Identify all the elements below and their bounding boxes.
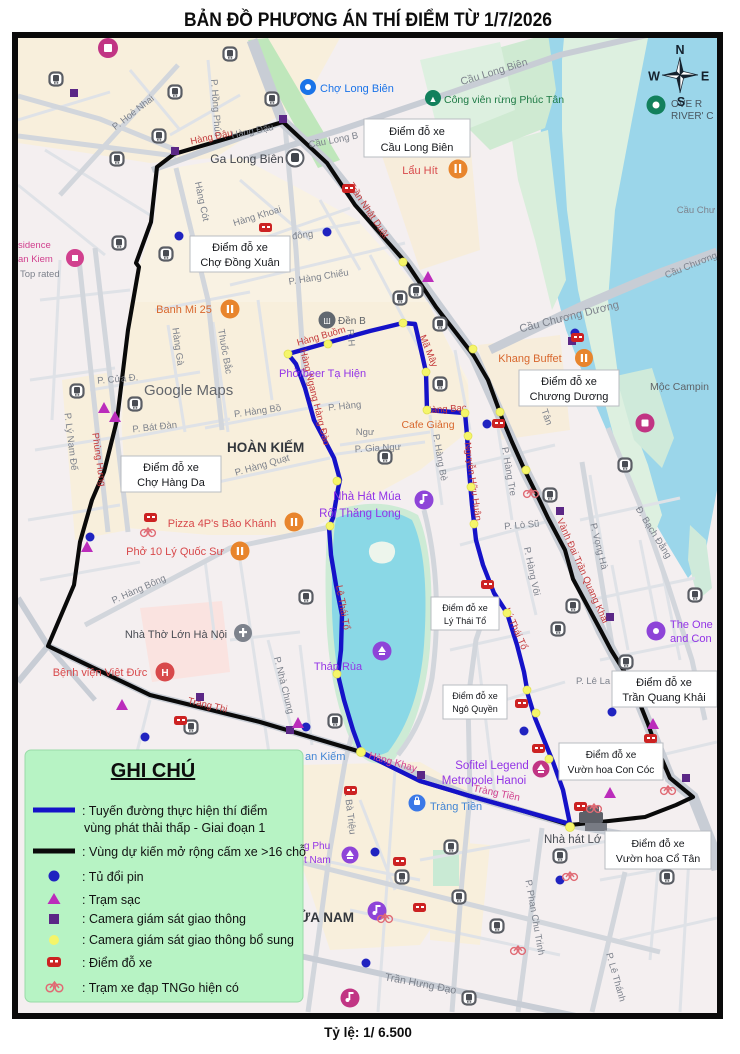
svg-text:Đền B: Đền B xyxy=(338,315,366,327)
svg-text:: Điểm đỗ xe: : Điểm đỗ xe xyxy=(82,955,152,970)
svg-text:S: S xyxy=(677,95,685,109)
svg-text:Bệnh viện Việt Đức: Bệnh viện Việt Đức xyxy=(53,667,148,679)
svg-text:Cafe Giảng: Cafe Giảng xyxy=(401,419,454,431)
svg-text:Ngư: Ngư xyxy=(356,427,375,438)
svg-text:P. H: P. H xyxy=(344,329,356,347)
svg-text:: Trạm xe đạp TNGo hiện có: : Trạm xe đạp TNGo hiện có xyxy=(82,981,239,995)
svg-text:W: W xyxy=(648,70,660,84)
svg-text:Tỷ lệ: 1/ 6.500: Tỷ lệ: 1/ 6.500 xyxy=(324,1025,412,1040)
svg-text:Pizza 4P's Bảo Khánh: Pizza 4P's Bảo Khánh xyxy=(168,518,277,530)
svg-text:▲: ▲ xyxy=(429,94,438,104)
svg-text:g Phu: g Phu xyxy=(304,841,330,852)
svg-text:Ш: Ш xyxy=(323,317,330,326)
svg-text:Nhà Thờ Lớn Hà Nội: Nhà Thờ Lớn Hà Nội xyxy=(125,629,227,641)
svg-text:t Nam: t Nam xyxy=(304,855,331,866)
svg-text:H: H xyxy=(161,668,168,679)
svg-text:and Con: and Con xyxy=(670,633,712,645)
svg-text:vùng phát thải thấp - Giai đoạ: vùng phát thải thấp - Giai đoạn 1 xyxy=(84,821,265,835)
svg-text:Google Maps: Google Maps xyxy=(144,382,233,399)
svg-text:Rối Thăng Long: Rối Thăng Long xyxy=(319,508,401,520)
svg-text:Nhà Hát Múa: Nhà Hát Múa xyxy=(333,491,401,503)
svg-text:Điểm đỗ xe: Điểm đỗ xe xyxy=(212,241,268,254)
svg-text:Ga Long Biên: Ga Long Biên xyxy=(210,152,283,166)
svg-text:OVE R: OVE R xyxy=(671,99,702,110)
svg-text:The One: The One xyxy=(670,619,713,631)
svg-text:Vườn hoa Cổ Tân: Vườn hoa Cổ Tân xyxy=(616,853,701,865)
svg-text:: Trạm sạc: : Trạm sạc xyxy=(82,893,140,907)
svg-text:Điểm đỗ xe: Điểm đỗ xe xyxy=(631,837,684,850)
svg-text:Điểm đỗ xe: Điểm đỗ xe xyxy=(636,676,692,689)
svg-text:Khang Buffet: Khang Buffet xyxy=(498,353,561,365)
svg-text:sidence: sidence xyxy=(18,240,51,251)
svg-text:E: E xyxy=(701,70,709,84)
svg-text:: Camera giám sát giao thông b: : Camera giám sát giao thông bổ sung xyxy=(82,933,294,947)
svg-text:Điểm đỗ xe: Điểm đỗ xe xyxy=(586,748,637,761)
svg-text:Trần Quang Khải: Trần Quang Khải xyxy=(622,692,705,704)
svg-text:Điểm đỗ xe: Điểm đỗ xe xyxy=(452,691,498,701)
svg-text:Top rated: Top rated xyxy=(20,269,60,280)
svg-text:Lý Thái Tổ: Lý Thái Tổ xyxy=(444,616,486,626)
svg-text:Cầu Chư: Cầu Chư xyxy=(677,205,716,216)
svg-text:Điểm đỗ xe: Điểm đỗ xe xyxy=(541,375,597,388)
svg-text:BẢN ĐỒ PHƯƠNG ÁN THÍ ĐIỂM TỪ 1: BẢN ĐỒ PHƯƠNG ÁN THÍ ĐIỂM TỪ 1/7/2026 xyxy=(184,7,552,31)
svg-text:P. Lê La: P. Lê La xyxy=(576,676,611,687)
svg-text:Mộc Campin: Mộc Campin xyxy=(650,381,709,393)
svg-text:Điểm đỗ xe: Điểm đỗ xe xyxy=(143,461,199,474)
svg-text:Lẩu Hít: Lẩu Hít xyxy=(402,165,437,177)
svg-text:: Vùng dự kiến mở rộng cấm xe: : Vùng dự kiến mở rộng cấm xe >16 chỗ xyxy=(82,844,306,859)
svg-text:an Kiếm: an Kiếm xyxy=(305,751,345,763)
svg-text:Ngô Quyền: Ngô Quyền xyxy=(452,704,498,714)
svg-text:Chương Dương: Chương Dương xyxy=(530,391,609,403)
svg-text:Chợ Đồng Xuân: Chợ Đồng Xuân xyxy=(200,257,279,269)
svg-text:an Kiem: an Kiem xyxy=(18,254,53,265)
svg-text:Phở/beer Tạ Hiện: Phở/beer Tạ Hiện xyxy=(279,368,366,380)
svg-text:: Tủ đổi pin: : Tủ đổi pin xyxy=(82,870,144,884)
svg-text:Phở 10 Lý Quốc Sư: Phở 10 Lý Quốc Sư xyxy=(126,546,224,558)
svg-text:HOÀN KIẾM: HOÀN KIẾM xyxy=(227,440,304,455)
svg-text:ỬA NAM: ỬA NAM xyxy=(299,910,354,925)
svg-text:: Camera giám sát giao thông: : Camera giám sát giao thông xyxy=(82,912,246,926)
svg-text:Banh Mi 25: Banh Mi 25 xyxy=(156,304,212,316)
svg-text:N: N xyxy=(675,43,684,57)
svg-text:Vườn hoa Con Cóc: Vườn hoa Con Cóc xyxy=(568,765,655,776)
svg-text:Chợ Long Biên: Chợ Long Biên xyxy=(320,83,394,95)
svg-text:Nhà hát Lớ: Nhà hát Lớ xyxy=(544,834,602,846)
svg-text:RIVER' C: RIVER' C xyxy=(671,111,713,122)
svg-text:Điểm đỗ xe: Điểm đỗ xe xyxy=(442,603,488,613)
svg-text:Tràng Tiền: Tràng Tiền xyxy=(430,801,482,813)
svg-text:: Tuyến đường thực hiện thí đi: : Tuyến đường thực hiện thí điểm xyxy=(82,804,267,818)
svg-text:Điểm đỗ xe: Điểm đỗ xe xyxy=(389,125,445,138)
svg-text:Sofitel Legend: Sofitel Legend xyxy=(455,760,529,772)
svg-text:Chợ Hàng Da: Chợ Hàng Da xyxy=(137,477,206,489)
svg-text:Metropole Hanoi: Metropole Hanoi xyxy=(442,775,526,787)
svg-text:GHI CHÚ: GHI CHÚ xyxy=(111,758,195,782)
svg-text:Công viên rừng Phúc Tân: Công viên rừng Phúc Tân xyxy=(444,94,564,106)
svg-text:Cầu Long Biên: Cầu Long Biên xyxy=(381,142,454,154)
